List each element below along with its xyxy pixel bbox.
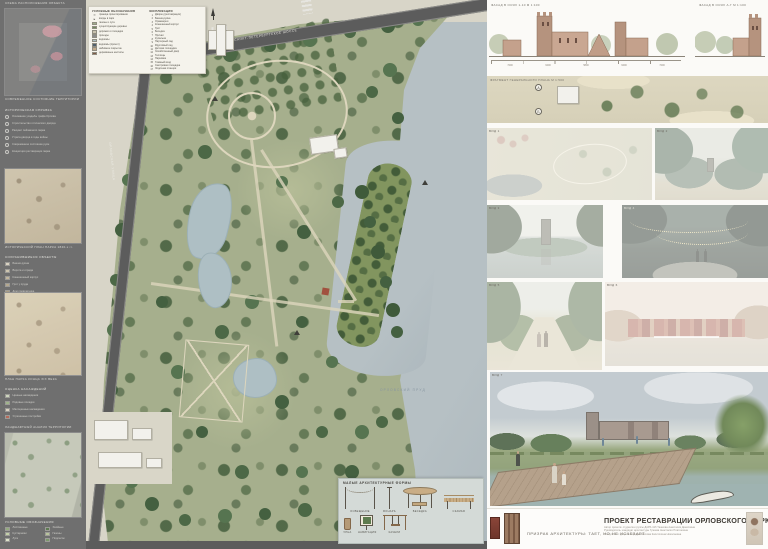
lamp-arm xyxy=(387,487,392,488)
main-render-panel: ВИД 7 xyxy=(490,372,768,506)
thumbnail-historic-plan-xix xyxy=(4,292,82,376)
dimension-value: 6400 xyxy=(621,64,626,67)
list3-item: Малоценные насаждения xyxy=(5,408,81,413)
siteplan-fragment-panel: ФРАГМЕНТ ГЕНЕРАЛЬНОГО ПЛАНА М 1:500 А Б xyxy=(487,76,768,123)
maf-label: СКАМЬЯ xyxy=(453,510,466,513)
maf-item-bench: СКАМЬЯ xyxy=(444,487,474,513)
legend-swatch-text: проезды xyxy=(99,35,109,38)
swatch-icon xyxy=(92,39,97,43)
swatch-icon xyxy=(92,47,97,51)
greenhouse-building xyxy=(98,452,142,468)
legend-swatch-text: газоны и луга xyxy=(99,22,115,25)
maf-item-gazebo: БЕСЕДКА xyxy=(402,487,438,513)
credit-line: Консультант: доцент кафедры Мягкова Капи… xyxy=(604,533,695,536)
swing-sketch xyxy=(383,515,407,530)
list2-item: Конюшенный корпус xyxy=(5,276,81,281)
legend-explication-column: ЭКСПЛИКАЦИЯ 1 Дворец (реставрация) 2 Баш… xyxy=(149,9,202,71)
history-item-text: Расцвет пейзажного парка xyxy=(12,129,45,132)
list2-item: Ворота и ограда xyxy=(5,269,81,274)
street-name-left: ОРЛОВСКАЯ УЛИЦА xyxy=(108,142,116,181)
nav-sign-sketch xyxy=(360,515,374,530)
pole xyxy=(389,488,390,509)
axis-bubble: Б xyxy=(535,108,542,115)
person-figure xyxy=(696,251,699,262)
maf-item-lighting: ОСВЕЩЕНИЕ xyxy=(343,487,377,513)
service-building xyxy=(132,428,152,440)
render-palace-body xyxy=(599,421,669,440)
parterre-circle xyxy=(228,92,276,140)
equestrian-statue xyxy=(668,438,670,446)
history-list: ИСТОРИЧЕСКАЯ СПРАВКА Основание усадьбы г… xyxy=(0,105,86,154)
north-arrow-stem xyxy=(213,16,214,20)
facade-label-left: ФАСАД В ОСЯХ 1-10 М 1:100 xyxy=(491,3,540,7)
legend-swatch-text: набивное покрытие xyxy=(99,48,122,51)
facade-drawing-left xyxy=(489,8,685,58)
facade-panel: ФАСАД В ОСЯХ 1-10 М 1:100 ФАСАД В ОСЯХ А… xyxy=(487,0,768,74)
pole xyxy=(374,487,375,509)
maf-grid: ОСВЕЩЕНИЕ ФОНАРЬ xyxy=(343,487,479,534)
sidebar-legend-item: Газоны xyxy=(45,532,81,537)
dimension-value: 6400 xyxy=(545,64,550,67)
swatch-icon xyxy=(5,394,10,398)
view-label: ВИД 6 xyxy=(607,283,618,287)
masterplan-map: САНКТ-ПЕТЕРБУРГСКОЕ ШОССЕ ОРЛОВСКАЯ УЛИЦ… xyxy=(86,0,487,549)
swatch-icon xyxy=(92,43,97,47)
view-label: ВИД 1 xyxy=(489,129,500,133)
swing-leg xyxy=(405,516,406,530)
history-item-text: Основание усадьбы графа Орлова xyxy=(12,115,56,118)
preserved-objects-list: СОХРАНИВШИЕСЯ ОБЪЕКТЫ Башня-руина Ворота… xyxy=(0,252,86,294)
render-palace xyxy=(578,412,678,440)
gazebo-bench xyxy=(412,502,427,506)
pole xyxy=(345,487,346,509)
string-lights xyxy=(656,221,748,245)
urn-body xyxy=(344,518,351,530)
mother-figure xyxy=(552,466,557,483)
service-building xyxy=(94,420,128,440)
bench-leg xyxy=(470,501,471,509)
view-label: ВИД 2 xyxy=(657,129,668,133)
pond-label: ОРЛОВСКИЙ ПРУД xyxy=(380,388,426,392)
legend-symbol-icon: ▸ xyxy=(92,18,97,21)
tower-silhouette xyxy=(541,219,551,245)
swatch-icon xyxy=(5,401,10,405)
legend-swatch-row: деревянные настилы xyxy=(92,52,145,56)
swatch-icon xyxy=(92,26,97,30)
history-item-text: Современное состояние руин xyxy=(12,143,49,146)
siteplan-label: ФРАГМЕНТ ГЕНЕРАЛЬНОГО ПЛАНА М 1:500 xyxy=(490,78,564,82)
sign-map-face xyxy=(363,517,371,524)
maf-item-swing: КАЧЕЛИ xyxy=(383,515,407,534)
list2-item: Грот у пруда xyxy=(5,283,81,288)
sidebar-legend-item: Хвойные xyxy=(45,526,81,531)
list2-item: Башня-руина xyxy=(5,262,81,267)
bench-sketch xyxy=(444,495,474,509)
bullet-circle-icon xyxy=(5,150,9,154)
legend-swatch-row: водоёмы xyxy=(92,39,145,43)
list2-item-text: Ворота и ограда xyxy=(13,269,33,272)
person-figure xyxy=(704,251,707,262)
list2-item-text: Грот у пруда xyxy=(13,283,29,286)
triangle-marker-icon xyxy=(422,180,428,185)
view-label: ВИД 4 xyxy=(624,206,635,210)
swatch-icon xyxy=(92,30,97,34)
crosswalk xyxy=(301,0,313,15)
explication-number: 17 xyxy=(149,68,153,71)
bullet-circle-icon xyxy=(5,122,9,126)
sidebar-legend-text: Хвойные xyxy=(53,526,64,529)
maf-card: МАЛЫЕ АРХИТЕКТУРНЫЕ ФОРМЫ ОСВЕЩЕНИЕ Ф xyxy=(338,478,484,544)
island-bridge-path xyxy=(338,300,354,303)
sidebar-legend: УСЛОВНЫЕ ОБОЗНАЧЕНИЯ Лиственные Хвойные xyxy=(0,520,86,544)
history-item: Основание усадьбы графа Орлова xyxy=(5,115,81,120)
north-arrow-icon xyxy=(208,8,218,22)
swatch-icon xyxy=(92,34,97,38)
list3-items: Ценные насаждения Рядовые посадки Малоце… xyxy=(0,394,86,420)
explication-rows: 1 Дворец (реставрация) 2 Башня-руина 3 О… xyxy=(149,14,202,71)
dimension-values: 72006400580064007200 xyxy=(491,64,681,67)
view-panel-night-lights: ВИД 4 xyxy=(622,205,768,278)
swatch-icon xyxy=(45,527,50,531)
explication-text: Лодочная станция xyxy=(155,68,176,71)
triangle-marker-icon xyxy=(294,330,300,335)
title-block: ПРИЗРАК АРХИТЕКТУРЫ: ТАЕТ, НО НЕ ИСЧЕЗАЕ… xyxy=(487,508,768,549)
facade-label-right: ФАСАД В ОСЯХ А-Г М 1:100 xyxy=(699,3,746,7)
sidebar-legend-text: Газоны xyxy=(53,532,62,535)
hedge-row xyxy=(490,452,768,455)
view-panel-vista: ВИД 2 xyxy=(655,128,768,200)
maf-label: ФОНАРЬ xyxy=(383,510,396,513)
sidebar-legend-items: Лиственные Хвойные Кустарники Га xyxy=(5,526,81,542)
history-item: Концепция реставрации парка xyxy=(5,150,81,155)
string-lights xyxy=(630,209,748,233)
view-panel-aerial: ВИД 1 xyxy=(487,128,652,200)
list3-title: ОЦЕНКА НАСАЖДЕНИЙ xyxy=(5,387,81,391)
project-credits: Автор проекта: студентка группы ДАРХ-41б… xyxy=(604,526,695,536)
maf-item-navigation: НАВИГАЦИЯ xyxy=(358,515,377,534)
formal-garden-parterre xyxy=(179,339,250,422)
swing-rope xyxy=(398,516,399,524)
list3-item: Утраченные постройки xyxy=(5,415,81,420)
ruin-marker xyxy=(321,287,329,295)
legend-swatch-text: существующие деревья xyxy=(99,26,127,29)
sidebar-legend-text: Лиственные xyxy=(13,526,28,529)
list3-item-text: Ценные насаждения xyxy=(13,394,39,397)
list3-item-text: Утраченные постройки xyxy=(13,415,42,418)
sidebar-legend-text: Кустарники xyxy=(13,532,27,535)
list3-item: Ценные насаждения xyxy=(5,394,81,399)
legend-swatch-text: водоёмы (проект) xyxy=(99,44,120,47)
swatch-icon xyxy=(92,22,97,26)
palace-building-row xyxy=(628,319,745,337)
tower-silhouette xyxy=(707,158,714,172)
presentation-board: СХЕМА РАСПОЛОЖЕНИЯ ОБЪЕКТА СОВРЕМЕННОЕ С… xyxy=(0,0,768,549)
shoreline-figures xyxy=(654,336,719,338)
north-arrow-head xyxy=(211,8,215,16)
person-figure xyxy=(537,334,541,347)
list3-item-text: Рядовые посадки xyxy=(13,401,35,404)
history-item: Современное состояние руин xyxy=(5,143,81,148)
sign-post xyxy=(366,526,367,530)
history-items: Основание усадьбы графа Орлова Строитель… xyxy=(0,115,86,155)
siteplan-building xyxy=(557,86,579,104)
sidebar-legend-item: Луга xyxy=(5,537,41,542)
maf-label: УРНА xyxy=(343,531,351,534)
equestrian-statue xyxy=(602,438,604,446)
bench-back xyxy=(444,495,474,496)
emblem-photo xyxy=(490,517,500,539)
dimension-value: 7200 xyxy=(507,64,512,67)
maf-item-lamp: ФОНАРЬ xyxy=(383,487,396,513)
aerial-parterre-ring xyxy=(551,140,629,188)
alley-path xyxy=(487,317,602,370)
maf-label: ОСВЕЩЕНИЕ xyxy=(350,510,370,513)
sidebar-legend-item: Подлесок xyxy=(45,537,81,542)
right-column: ФАСАД В ОСЯХ 1-10 М 1:100 ФАСАД В ОСЯХ А… xyxy=(487,0,768,549)
history-item: Строительство готического дворца xyxy=(5,122,81,127)
swing-leg xyxy=(384,516,385,530)
swatch-icon xyxy=(5,276,10,280)
maf-item-urn: УРНА xyxy=(343,515,352,534)
sidebar-top-caption: СХЕМА РАСПОЛОЖЕНИЯ ОБЪЕКТА xyxy=(0,2,86,6)
lamp-post-sketch xyxy=(385,487,393,509)
thumbnail-current-state-plan xyxy=(4,8,82,96)
view-label: ВИД 5 xyxy=(489,283,500,287)
thumbnail3-caption: ПЛАН ПАРКА КОНЦА XIX ВЕКА xyxy=(0,378,62,382)
vegetation-assessment-list: ОЦЕНКА НАСАЖДЕНИЙ Ценные насаждения Рядо… xyxy=(0,384,86,419)
tower-reflection xyxy=(541,249,551,265)
thumbnail-landscape-analysis xyxy=(4,432,82,518)
explication-row: 17 Лодочная станция xyxy=(149,68,202,71)
sidebar-legend-title: УСЛОВНЫЕ ОБОЗНАЧЕНИЯ xyxy=(5,520,81,524)
swing-rope xyxy=(392,516,393,524)
maf-label: БЕСЕДКА xyxy=(413,510,427,513)
view-panel-alley: ВИД 5 xyxy=(487,282,602,370)
view-label: ВИД 7 xyxy=(492,373,503,377)
history-title: ИСТОРИЧЕСКАЯ СПРАВКА xyxy=(5,108,81,112)
sidebar-legend-text: Луга xyxy=(13,537,19,540)
view-panel-pond-tower: ВИД 3 xyxy=(487,205,603,278)
history-item-text: Строительство готического дворца xyxy=(12,122,56,125)
bench-leg xyxy=(447,501,448,509)
thumbnail-historic-plan-1840 xyxy=(4,168,82,244)
maf-label: КАЧЕЛИ xyxy=(389,531,401,534)
equestrian-statue xyxy=(636,436,638,444)
legend-symbols-column: УСЛОВНЫЕ ОБОЗНАЧЕНИЯ ━ граница проектиро… xyxy=(92,9,145,71)
building-annex xyxy=(333,147,347,159)
maf-label: НАВИГАЦИЯ xyxy=(358,531,377,534)
bullet-circle-icon xyxy=(5,129,9,133)
triangle-marker-icon xyxy=(212,96,218,101)
list2-item-text: Башня-руина xyxy=(13,262,30,265)
pole xyxy=(408,494,409,508)
swatch-icon xyxy=(5,262,10,266)
walker-figure xyxy=(516,454,520,466)
urn-sketch xyxy=(343,517,352,530)
legend-swatch-text: деревянные настилы xyxy=(99,52,124,55)
axis-bubble: А xyxy=(535,84,542,91)
swatch-icon xyxy=(5,538,10,542)
swing-seat xyxy=(391,524,400,526)
view-label: ВИД 3 xyxy=(489,206,500,210)
list2-item-text: Конюшенный корпус xyxy=(13,276,39,279)
service-building xyxy=(146,458,162,468)
sidebar-legend-item: Кустарники xyxy=(5,532,41,537)
list3-item: Рядовые посадки xyxy=(5,401,81,406)
render-palace-tower xyxy=(586,412,599,440)
swatch-icon xyxy=(5,532,10,536)
list2-items: Башня-руина Ворота и ограда Конюшенный к… xyxy=(0,262,86,295)
swatch-icon xyxy=(5,269,10,273)
view-panel-palace-across-water: ВИД 6 xyxy=(605,282,768,366)
legend-symbol-rows: ━ граница проектирования ▸ входы в парк xyxy=(92,14,145,21)
history-item: Утрата дворца в годы войны xyxy=(5,136,81,141)
sidebar-analysis-column: СХЕМА РАСПОЛОЖЕНИЯ ОБЪЕКТА СОВРЕМЕННОЕ С… xyxy=(0,0,86,549)
swatch-icon xyxy=(5,527,10,531)
facade-drawing-right xyxy=(695,8,765,58)
swing-beam xyxy=(383,515,407,516)
project-title: ПРОЕКТ РЕСТАВРАЦИИ ОРЛОВСКОГО ПАРКА xyxy=(604,516,768,525)
map-legend-card: УСЛОВНЫЕ ОБОЗНАЧЕНИЯ ━ граница проектиро… xyxy=(88,6,206,74)
list2-title: СОХРАНИВШИЕСЯ ОБЪЕКТЫ xyxy=(5,255,81,259)
ruin-photo xyxy=(504,513,520,544)
author-portrait-photo xyxy=(746,512,763,545)
dimension-value: 5800 xyxy=(583,64,588,67)
pole xyxy=(431,494,432,508)
swatch-icon xyxy=(45,532,50,536)
bullet-circle-icon xyxy=(5,115,9,119)
legend-swatch-text: дорожки и площадки xyxy=(99,31,123,34)
string-lights-sketch xyxy=(343,487,377,509)
legend-swatch-row: существующие деревья xyxy=(92,26,145,30)
swatch-icon xyxy=(5,283,10,287)
legend-swatch-rows: газоны и луга существующие деревья дорож… xyxy=(92,22,145,56)
swatch-icon xyxy=(5,408,10,412)
list3-item-text: Малоценные насаждения xyxy=(13,408,45,411)
history-item: Расцвет пейзажного парка xyxy=(5,129,81,134)
swatch-icon xyxy=(45,538,50,542)
thumbnail2-caption: ИСТОРИЧЕСКИЙ ПЛАН ПАРКА 1840-х гг. xyxy=(0,246,78,250)
sidebar-legend-text: Подлесок xyxy=(53,537,65,540)
legend-swatch-text: водоёмы xyxy=(99,39,109,42)
history-item-text: Утрата дворца в годы войны xyxy=(12,136,48,139)
light-string xyxy=(346,483,374,493)
dimension-value: 7200 xyxy=(659,64,664,67)
bullet-circle-icon xyxy=(5,143,9,147)
child-figure xyxy=(562,474,566,485)
thumbnail1-caption: СОВРЕМЕННОЕ СОСТОЯНИЕ ТЕРРИТОРИИ xyxy=(0,98,84,102)
swatch-icon xyxy=(5,415,10,419)
building-church-wing xyxy=(216,24,226,56)
history-item-text: Концепция реставрации парка xyxy=(12,150,50,153)
thumbnail4-caption: ЛАНДШАФТНЫЙ АНАЛИЗ ТЕРРИТОРИИ xyxy=(0,426,77,430)
swatch-icon xyxy=(92,52,97,56)
gazebo-sketch xyxy=(402,487,438,509)
bullet-circle-icon xyxy=(5,136,9,140)
sidebar-legend-item: Лиственные xyxy=(5,526,41,531)
person-figure xyxy=(544,333,548,347)
